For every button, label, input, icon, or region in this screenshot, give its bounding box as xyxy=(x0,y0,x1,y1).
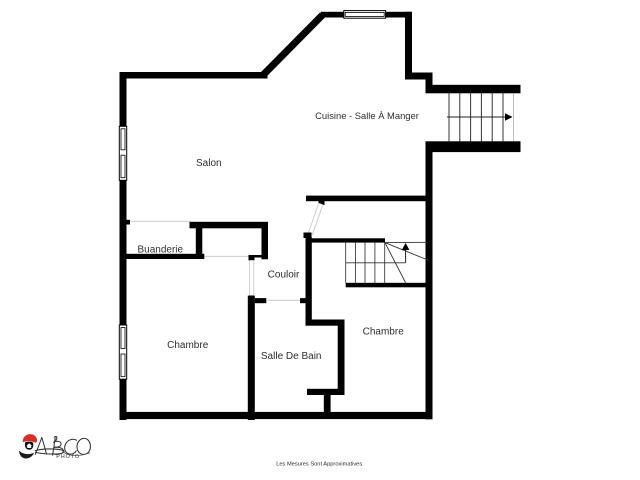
svg-text:Buanderie: Buanderie xyxy=(138,244,184,255)
svg-text:Salle De Bain: Salle De Bain xyxy=(261,351,322,362)
svg-text:Cuisine - Salle À Manger: Cuisine - Salle À Manger xyxy=(315,110,419,121)
svg-text:Les Mesures Sont Approximative: Les Mesures Sont Approximatives. xyxy=(276,461,364,467)
svg-text:Chambre: Chambre xyxy=(167,340,209,351)
svg-text:Chambre: Chambre xyxy=(363,327,405,338)
svg-text:PHOTO: PHOTO xyxy=(56,454,80,460)
svg-text:Salon: Salon xyxy=(196,158,222,169)
svg-text:Couloir: Couloir xyxy=(268,269,300,280)
